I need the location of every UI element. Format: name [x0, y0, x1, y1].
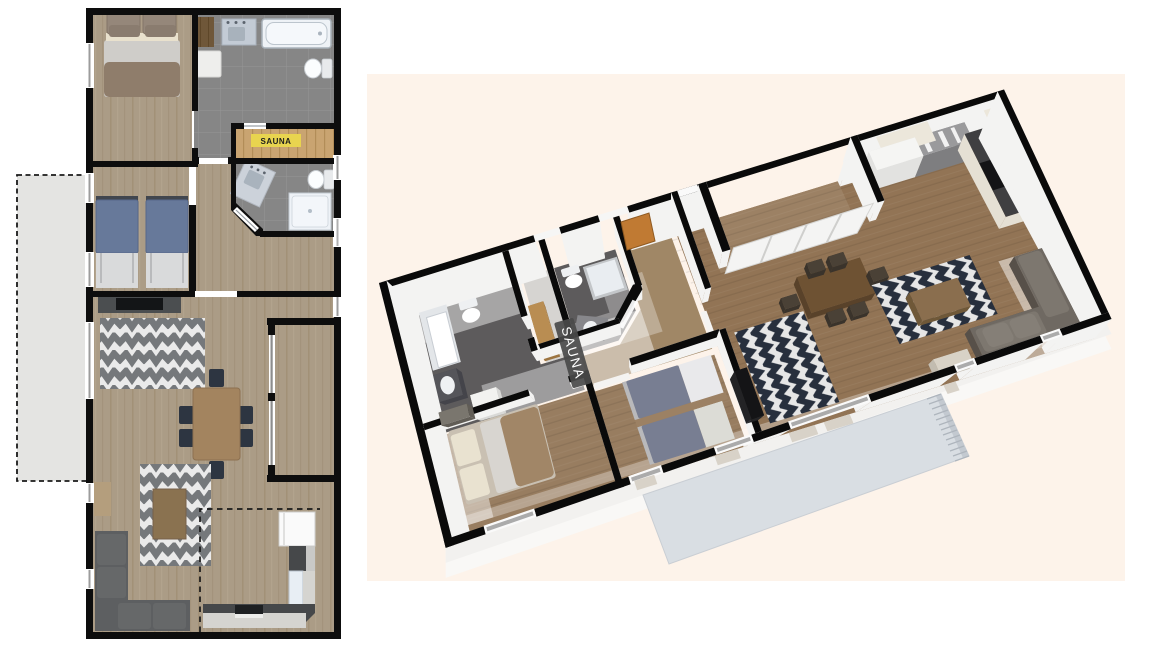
svg-text:SAUNA: SAUNA — [261, 137, 292, 146]
